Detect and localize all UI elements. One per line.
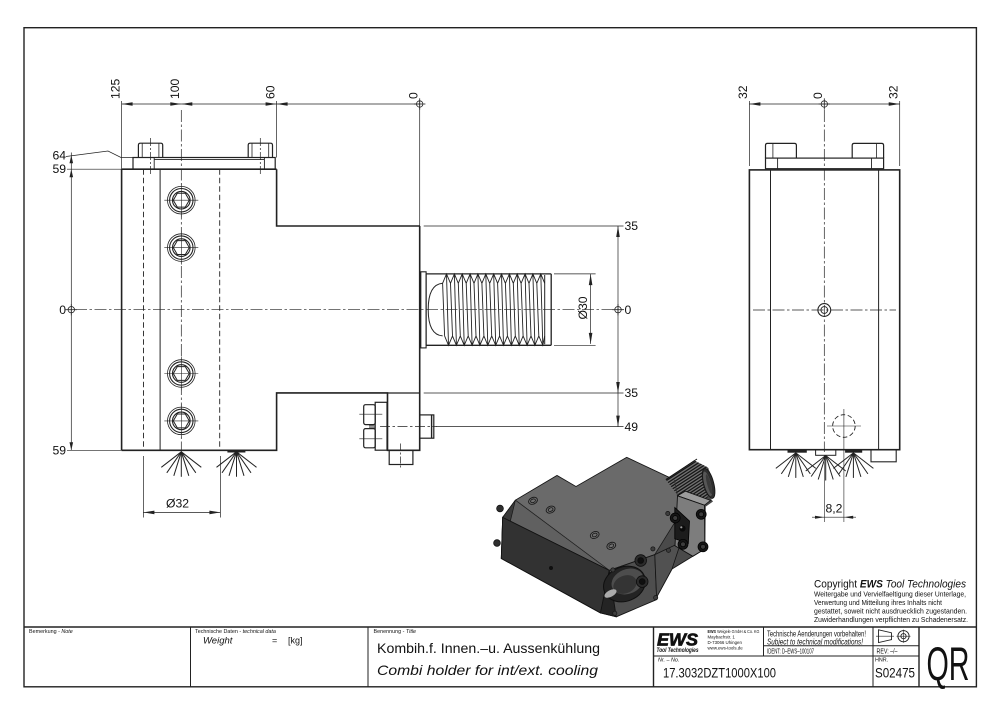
svg-text:HNR.: HNR. — [875, 658, 888, 664]
svg-text:Kombih.f. Innen.–u. Aussenkühl: Kombih.f. Innen.–u. Aussenkühlung — [377, 640, 600, 656]
svg-text:Ø30: Ø30 — [576, 296, 590, 319]
svg-text:Tool Technologies: Tool Technologies — [657, 647, 699, 654]
svg-text:D-73066 Uhingen: D-73066 Uhingen — [708, 640, 743, 645]
svg-text:64: 64 — [52, 148, 66, 162]
svg-text:0: 0 — [811, 92, 825, 99]
svg-text:www.ews-tools.de: www.ews-tools.de — [708, 646, 744, 651]
svg-text:0: 0 — [625, 303, 632, 317]
svg-text:35: 35 — [625, 386, 639, 400]
svg-text:=: = — [272, 636, 277, 646]
svg-text:Benennung - Title: Benennung - Title — [374, 629, 417, 635]
svg-text:Combi holder for int/ext. cool: Combi holder for int/ext. cooling — [377, 662, 598, 678]
svg-text:IDENT: D–EWS–100107: IDENT: D–EWS–100107 — [767, 647, 814, 656]
svg-text:17.3032DZT1000X100: 17.3032DZT1000X100 — [663, 665, 776, 681]
svg-text:[kg]: [kg] — [288, 636, 303, 646]
svg-text:Weight: Weight — [203, 636, 233, 647]
svg-text:32: 32 — [736, 85, 750, 99]
svg-text:Nr. – No.: Nr. – No. — [658, 658, 679, 664]
svg-text:60: 60 — [263, 85, 277, 99]
svg-text:32: 32 — [887, 85, 901, 99]
svg-text:REV: –/–: REV: –/– — [877, 647, 898, 656]
svg-text:8,2: 8,2 — [826, 502, 843, 516]
svg-text:59: 59 — [52, 162, 66, 176]
svg-text:QR: QR — [927, 638, 970, 691]
svg-text:Technische Daten - technical: Technische Daten - technical data — [195, 629, 276, 635]
svg-text:0: 0 — [407, 92, 421, 99]
svg-text:S02475: S02475 — [875, 665, 915, 681]
svg-text:Subject to technical modificat: Subject to technical modifications! — [767, 638, 864, 647]
svg-text:Maybachstr. 1: Maybachstr. 1 — [708, 635, 736, 640]
svg-text:100: 100 — [168, 78, 182, 99]
svg-text:Zuwiderhandlungen verpflichten: Zuwiderhandlungen verpflichten zu Schade… — [814, 615, 968, 624]
svg-text:59: 59 — [52, 443, 66, 457]
svg-text:Ø32: Ø32 — [166, 497, 189, 511]
svg-text:Bemerkung - Note: Bemerkung - Note — [29, 629, 73, 635]
svg-text:125: 125 — [108, 78, 122, 99]
svg-text:EWS Weigele GmbH & Co. KG: EWS Weigele GmbH & Co. KG — [708, 629, 760, 634]
svg-text:0: 0 — [59, 303, 66, 317]
svg-text:35: 35 — [625, 219, 639, 233]
svg-text:49: 49 — [625, 420, 639, 434]
